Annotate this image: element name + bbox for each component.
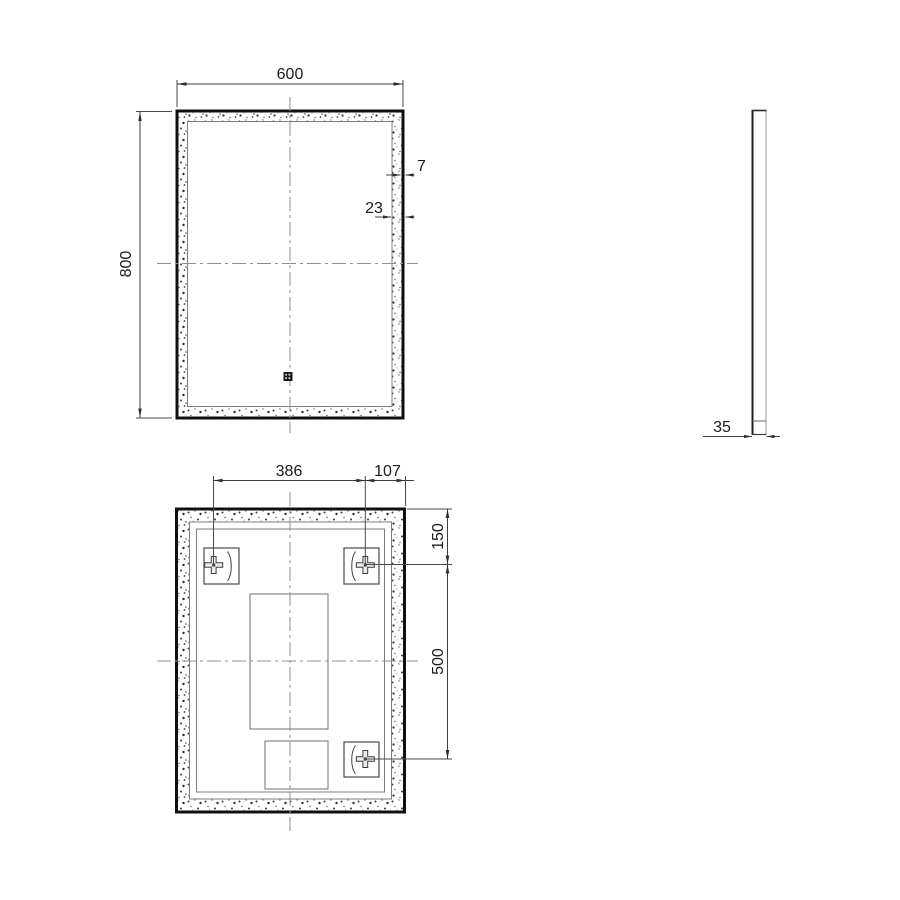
arrowhead: [446, 750, 450, 759]
dim-bracket-offset-label: 107: [374, 463, 401, 480]
arrowhead: [744, 435, 752, 438]
dim-bracket-top-label: 150: [430, 523, 447, 550]
arrowhead: [356, 479, 365, 483]
arrowhead: [394, 82, 404, 85]
arrowhead: [177, 82, 187, 85]
junction-box: [265, 741, 328, 789]
back-view: 386 107 150 500: [157, 463, 452, 834]
arrowhead: [446, 556, 450, 565]
drawing-canvas: 600 800 7 23: [0, 0, 900, 900]
dim-height: 800: [118, 112, 172, 419]
dim-frame-label: 7: [417, 158, 426, 175]
mounting-bracket-top-left: [204, 548, 239, 584]
dim-depth: 35: [703, 419, 780, 438]
arrowhead: [138, 112, 141, 122]
dim-bracket-span-label: 386: [276, 463, 303, 480]
mounting-bracket-top-right: [344, 548, 379, 584]
arrowhead: [446, 509, 450, 518]
dim-height-label: 800: [118, 251, 135, 278]
side-view: 35: [703, 111, 780, 439]
side-profile: [753, 111, 767, 435]
arrowhead: [446, 565, 450, 574]
arrowhead: [767, 435, 775, 438]
dim-band-label: 23: [365, 200, 383, 217]
arrowhead: [138, 409, 141, 419]
dim-depth-label: 35: [713, 419, 731, 436]
arrowhead: [406, 173, 414, 176]
arrowhead: [214, 479, 223, 483]
front-view: 600 800 7 23: [118, 66, 426, 433]
dim-bracket-vspan-label: 500: [430, 648, 447, 675]
mirror-technical-drawing: 600 800 7 23: [0, 0, 900, 900]
arrowhead: [406, 215, 414, 218]
arrowhead: [365, 479, 374, 483]
dim-width-label: 600: [277, 66, 304, 83]
touch-sensor-icon: [284, 372, 293, 381]
